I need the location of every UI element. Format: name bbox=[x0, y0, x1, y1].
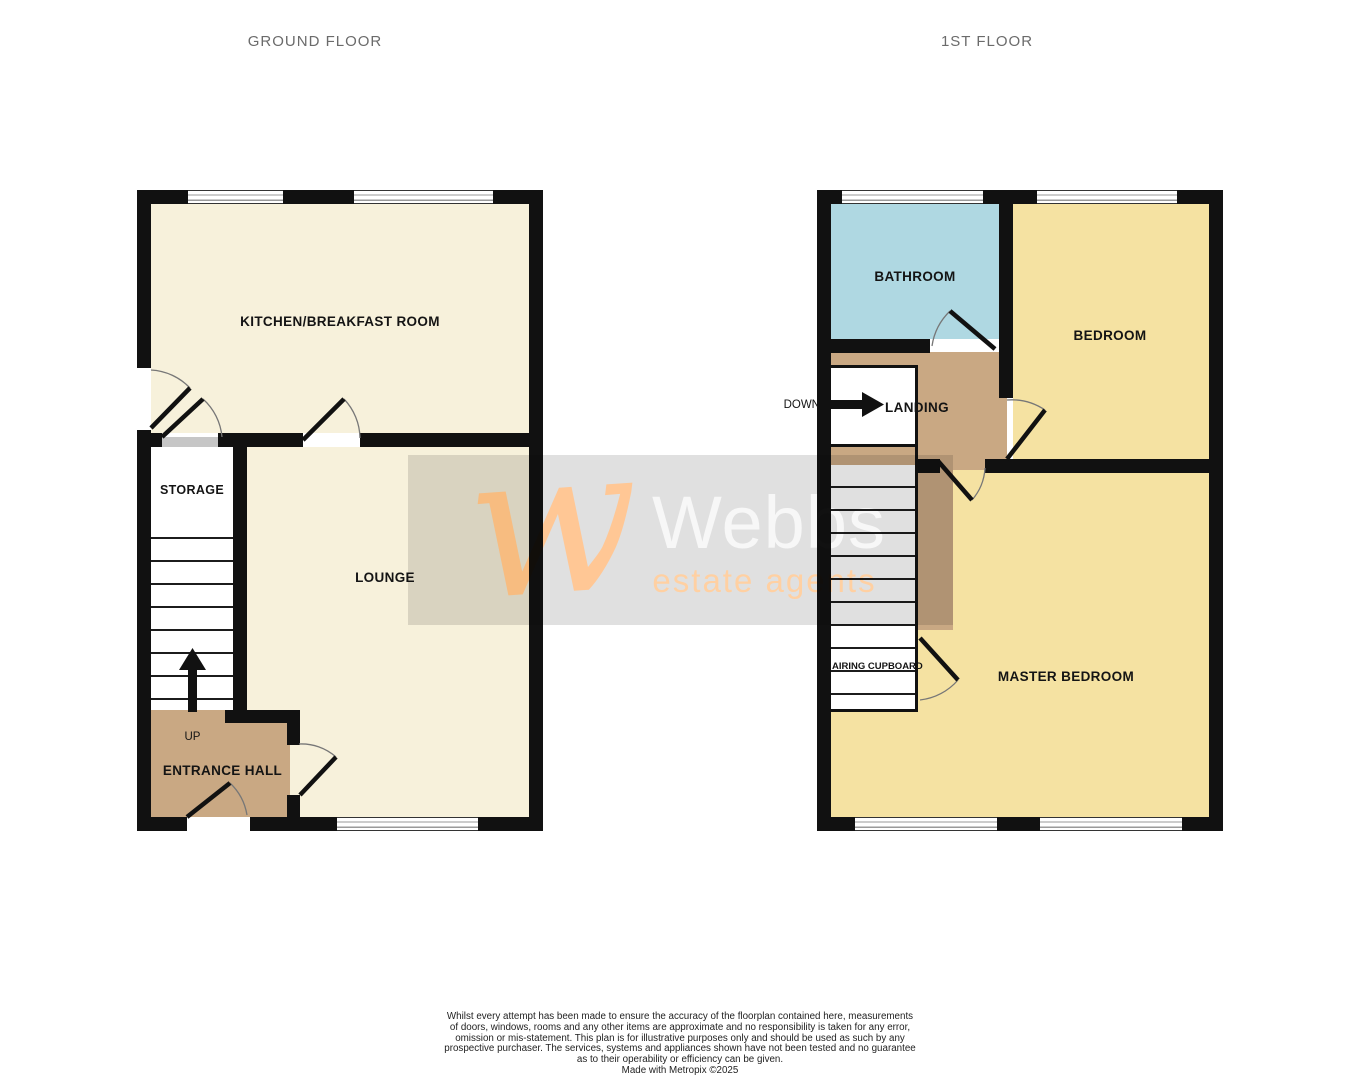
door-leaves bbox=[151, 311, 1045, 817]
disclaimer-line: of doors, windows, rooms and any other i… bbox=[0, 1023, 1360, 1034]
up-arrow-icon bbox=[179, 648, 206, 712]
doors-and-arrows-layer bbox=[0, 0, 1360, 1080]
credit-line: Made with Metropix ©2025 bbox=[0, 1066, 1360, 1077]
disclaimer: Whilst every attempt has been made to en… bbox=[0, 1012, 1360, 1077]
door-arcs bbox=[151, 311, 1045, 815]
down-arrow-icon bbox=[820, 392, 884, 417]
